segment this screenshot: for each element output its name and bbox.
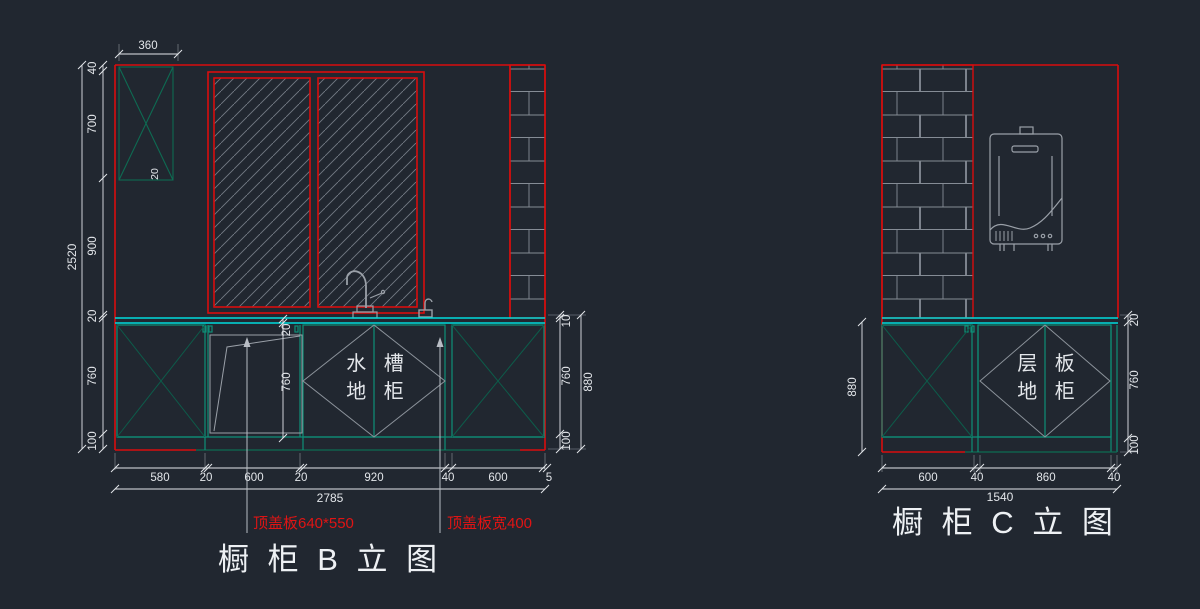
brick-column-c	[882, 65, 973, 318]
left-total-dim-c: 880	[847, 377, 859, 396]
note-right-text: 顶盖板宽400	[447, 514, 532, 532]
svg-text:40: 40	[1108, 472, 1121, 484]
svg-text:700: 700	[87, 114, 99, 133]
water-heater-icon	[990, 127, 1062, 251]
left-dim-chain-b: 40 700 900 20 760 100 2520	[65, 61, 107, 453]
panel-thickness-dim: 20	[149, 168, 161, 180]
svg-text:760: 760	[1129, 370, 1141, 389]
svg-text:40: 40	[971, 472, 984, 484]
svg-text:580: 580	[150, 472, 169, 484]
svg-text:20: 20	[1129, 314, 1141, 327]
svg-text:100: 100	[1129, 435, 1141, 454]
svg-text:5: 5	[546, 472, 552, 484]
svg-text:760: 760	[87, 366, 99, 385]
svg-text:20: 20	[87, 310, 99, 323]
svg-text:40: 40	[87, 62, 99, 75]
leader-note-right: 顶盖板宽400	[437, 337, 533, 533]
bottom-total-dim-b: 2785	[317, 491, 344, 505]
note-left-text: 顶盖板640*550	[253, 514, 354, 532]
left-dim-chain-c: 880	[847, 318, 866, 456]
cabinet-c-title: 橱 柜 C 立 图	[892, 505, 1118, 540]
right-dim-chain-b: 10 760 100 880	[548, 311, 595, 453]
left-total-dim-b: 2520	[65, 243, 79, 270]
cabinet-b-title: 橱 柜 B 立 图	[218, 542, 442, 577]
base-cabinet-cross-marks-b	[117, 325, 544, 437]
bottom-dim-chain-c: 600 40 860 40 1540	[878, 455, 1121, 504]
cad-drawing-svg: 20	[0, 0, 1200, 609]
svg-text:100: 100	[87, 431, 99, 450]
svg-text:20: 20	[295, 472, 308, 484]
countertop-c	[882, 318, 1118, 323]
svg-text:600: 600	[918, 472, 937, 484]
sink-cabinet-label-line1: 水 槽	[346, 352, 410, 375]
sink-cabinet-label-line2: 地 柜	[346, 380, 410, 403]
brick-column-b	[510, 65, 545, 318]
cabinet-b-elevation: 20	[65, 40, 595, 577]
svg-text:20: 20	[281, 324, 293, 337]
base-cabinet-cross-marks-c	[882, 325, 972, 437]
side-panel-box	[119, 67, 173, 180]
shelf-cabinet-label-line1: 层 板	[1017, 352, 1081, 375]
bottom-dim-chain-b: 580 20 600 20 920 40 600 5 2785	[111, 453, 552, 505]
top-width-dim: 360	[115, 40, 182, 61]
svg-text:10: 10	[561, 315, 573, 328]
svg-text:760: 760	[561, 366, 573, 385]
svg-text:760: 760	[281, 372, 293, 391]
svg-text:100: 100	[561, 431, 573, 450]
countertop-b	[115, 318, 545, 323]
svg-text:600: 600	[488, 472, 507, 484]
bottom-total-dim-c: 1540	[987, 490, 1014, 504]
door-dim-chain: 20 760	[279, 315, 293, 442]
right-total-dim-b: 880	[583, 372, 595, 391]
soap-dispenser-icon	[419, 299, 432, 317]
wall-cabinet-glass-doors	[208, 72, 424, 313]
svg-text:920: 920	[364, 472, 383, 484]
svg-text:860: 860	[1036, 472, 1055, 484]
cabinet-c-elevation: 层 板 地 柜 880 20 760 100 600 40	[847, 65, 1141, 540]
cad-workspace: 20	[0, 0, 1200, 609]
shelf-cabinet-label-line2: 地 柜	[1017, 380, 1081, 403]
base-cabinets-b	[117, 325, 545, 450]
svg-text:40: 40	[442, 472, 455, 484]
base-cabinets-c	[882, 325, 1117, 452]
svg-text:900: 900	[87, 236, 99, 255]
right-dim-chain-c: 20 760 100	[1120, 311, 1141, 456]
svg-text:20: 20	[200, 472, 213, 484]
svg-text:360: 360	[138, 40, 157, 52]
